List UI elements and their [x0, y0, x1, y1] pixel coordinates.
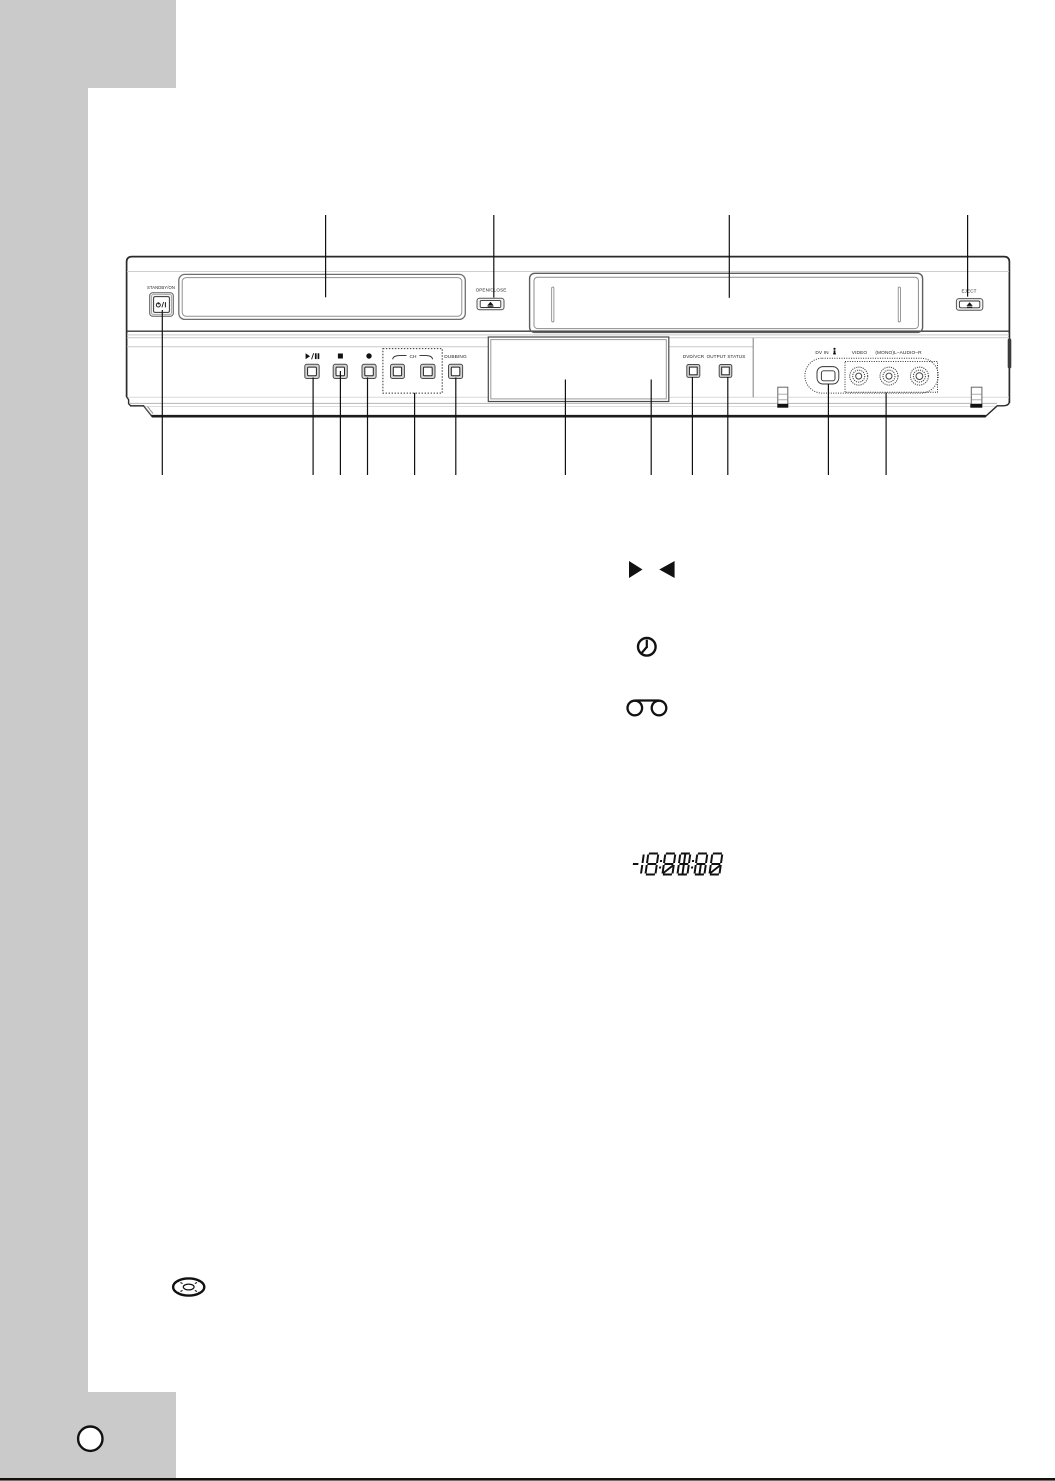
svg-text:(MONO)L–AUDIO–R: (MONO)L–AUDIO–R	[875, 350, 922, 356]
svg-text:DVD/VCR: DVD/VCR	[683, 354, 705, 359]
svg-text:STANDBY/ON: STANDBY/ON	[147, 285, 175, 290]
svg-text:DUBBING: DUBBING	[444, 354, 467, 360]
svg-text:EJECT: EJECT	[961, 288, 976, 293]
svg-text:VIDEO: VIDEO	[852, 350, 868, 356]
svg-text:OPEN/CLOSE: OPEN/CLOSE	[476, 288, 507, 293]
svg-text:DV IN: DV IN	[815, 350, 829, 356]
svg-text:CH: CH	[410, 354, 417, 360]
svg-text:OUTPUT STATUS: OUTPUT STATUS	[707, 354, 746, 359]
